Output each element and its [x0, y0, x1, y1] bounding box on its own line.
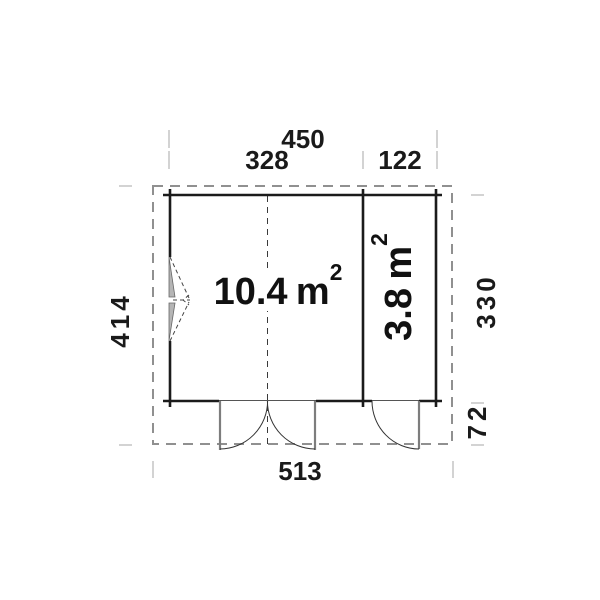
floor-plan-canvas: 450 328 122 414 330 72 513 10.4m2 3.8m2: [0, 0, 600, 600]
dim-label-depth-total: 414: [107, 292, 133, 347]
single-door-symbol: [372, 401, 419, 449]
room-side-area-value: 3.8: [378, 288, 420, 341]
room-main-area-value: 10.4: [214, 271, 288, 313]
room-area-label-main: 10.4m2: [211, 273, 346, 311]
window-symbol: [169, 257, 190, 341]
room-side-area-unit: m: [378, 246, 420, 280]
dim-label-width-overall: 513: [278, 458, 321, 484]
dim-label-porch-depth: 72: [464, 403, 490, 440]
room-side-area-sup: 2: [366, 233, 392, 246]
room-area-label-side: 3.8m2: [380, 230, 418, 344]
dim-label-depth-interior: 330: [473, 273, 499, 328]
room-main-area-sup: 2: [330, 259, 343, 285]
room-main-area-unit: m: [296, 271, 330, 313]
dim-label-width-room-side: 122: [378, 147, 421, 173]
dim-label-width-room-main: 328: [245, 147, 288, 173]
